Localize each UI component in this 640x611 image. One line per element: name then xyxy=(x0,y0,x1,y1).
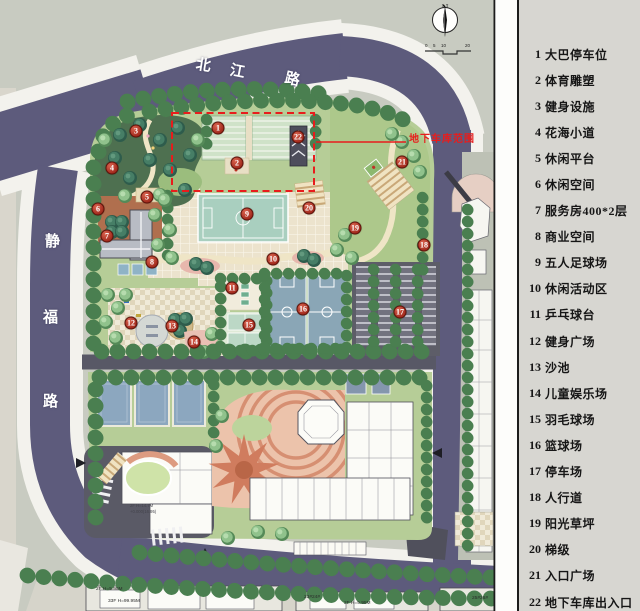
legend-item-number: 20 xyxy=(526,542,541,557)
legend-panel: 1 大巴停车位 2 体育雕塑 3 健身设施 4 花海小道 5 休闲平台 6 休闲… xyxy=(517,0,640,611)
building-label-center-2: +0.000(16.95) xyxy=(130,509,156,514)
legend-item-label: 健身广场 xyxy=(545,333,595,350)
legend-item-number: 4 xyxy=(526,125,541,140)
legend-item: 20 梯级 xyxy=(526,537,640,563)
legend-item: 6 休闲空间 xyxy=(526,171,640,197)
legend-item-label: 梯级 xyxy=(545,541,570,558)
legend-item-number: 17 xyxy=(526,464,541,479)
legend-item-number: 15 xyxy=(526,412,541,427)
building-label-center-1: 2F H=14.7M xyxy=(130,503,153,508)
legend-item-number: 1 xyxy=(526,47,541,62)
legend-item: 16 篮球场 xyxy=(526,432,640,458)
legend-item-label: 休闲空间 xyxy=(545,176,595,193)
map-marker: 6 xyxy=(92,203,105,216)
map-marker: 7 xyxy=(101,230,114,243)
legend-item-label: 服务房400*2层 xyxy=(545,202,628,219)
legend-item-label: 花海小道 xyxy=(545,124,595,141)
legend-item: 1 大巴停车位 xyxy=(526,41,640,67)
legend-item-label: 五人足球场 xyxy=(545,254,608,271)
garage-range-label: 地下车库范围 xyxy=(409,130,475,145)
map-marker: 3 xyxy=(130,125,143,138)
map-marker: 4 xyxy=(106,162,119,175)
map-marker: 14 xyxy=(188,336,201,349)
legend-item-label: 沙池 xyxy=(545,359,570,376)
legend-item: 10 休闲活动区 xyxy=(526,276,640,302)
legend-item: 2 体育雕塑 xyxy=(526,67,640,93)
legend-item-number: 16 xyxy=(526,438,541,453)
legend-item-number: 2 xyxy=(526,73,541,88)
legend-item: 22 地下车库出入口 xyxy=(526,589,640,611)
map-marker: 8 xyxy=(146,256,159,269)
legend-item-label: 休闲平台 xyxy=(545,150,595,167)
scale-tick: 20 xyxy=(465,43,470,48)
building-label-right-1: 23#24# xyxy=(304,595,320,600)
scale-tick: 0 xyxy=(425,43,428,48)
legend-item: 5 休闲平台 xyxy=(526,145,640,171)
compass: N xyxy=(431,4,459,13)
building-label-corner: 25#26# xyxy=(472,596,488,601)
legend-item-number: 14 xyxy=(526,386,541,401)
compass-needle-icon xyxy=(431,4,459,38)
legend-item-label: 羽毛球场 xyxy=(545,411,595,428)
map-marker: 21 xyxy=(396,156,409,169)
legend-item: 11 乒乓球台 xyxy=(526,302,640,328)
map-marker: 9 xyxy=(241,208,254,221)
legend-item-number: 3 xyxy=(526,99,541,114)
map-marker: 10 xyxy=(267,253,280,266)
legend-item-label: 体育雕塑 xyxy=(545,72,595,89)
map-marker: 15 xyxy=(243,319,256,332)
legend-item-label: 休闲活动区 xyxy=(545,280,608,297)
legend-item: 15 羽毛球场 xyxy=(526,406,640,432)
building-label-left-1: 2F H=5.95M xyxy=(96,587,123,592)
legend-item-label: 地下车库出入口 xyxy=(545,594,633,611)
legend-item-number: 12 xyxy=(526,334,541,349)
legend-list: 1 大巴停车位 2 体育雕塑 3 健身设施 4 花海小道 5 休闲平台 6 休闲… xyxy=(519,0,640,611)
building-label-right-2: 2F H=5.95M xyxy=(344,601,371,606)
legend-item: 4 花海小道 xyxy=(526,119,640,145)
legend-item-label: 儿童娱乐场 xyxy=(545,385,608,402)
legend-item: 21 入口广场 xyxy=(526,563,640,589)
map-marker: 2 xyxy=(231,157,244,170)
legend-item-label: 乒乓球台 xyxy=(545,306,595,323)
legend-item-number: 21 xyxy=(526,568,541,583)
scale-bar-line xyxy=(423,49,475,57)
legend-item-label: 健身设施 xyxy=(545,98,595,115)
map-marker: 17 xyxy=(394,306,407,319)
legend-item-label: 入口广场 xyxy=(545,567,595,584)
legend-item: 9 五人足球场 xyxy=(526,250,640,276)
legend-item-label: 阳光草坪 xyxy=(545,515,595,532)
legend-item: 14 儿童娱乐场 xyxy=(526,380,640,406)
map-marker: 19 xyxy=(349,222,362,235)
legend-item-label: 篮球场 xyxy=(545,437,583,454)
map-marker: 12 xyxy=(125,317,138,330)
road-char: 静 xyxy=(45,230,60,251)
map-marker: 20 xyxy=(303,202,316,215)
map-marker: 18 xyxy=(418,239,431,252)
map-marker: 22 xyxy=(292,131,305,144)
legend-item-number: 9 xyxy=(526,255,541,270)
scale-tick: 10 xyxy=(441,43,446,48)
legend-item-number: 19 xyxy=(526,516,541,531)
legend-item: 13 沙池 xyxy=(526,354,640,380)
legend-item-number: 11 xyxy=(526,307,541,322)
site-plan-canvas: 北 江 路 静 福 路 地下车库范围 2F H=14.7M +0.000(16.… xyxy=(0,0,640,611)
legend-item-number: 8 xyxy=(526,229,541,244)
map-marker: 16 xyxy=(297,303,310,316)
map-marker: 5 xyxy=(141,191,154,204)
legend-item: 18 人行道 xyxy=(526,485,640,511)
map-graphics xyxy=(0,0,517,611)
legend-item-number: 7 xyxy=(526,203,541,218)
legend-item-number: 10 xyxy=(526,281,541,296)
legend-item-label: 大巴停车位 xyxy=(545,46,608,63)
map-marker: 11 xyxy=(226,282,239,295)
legend-item: 19 阳光草坪 xyxy=(526,511,640,537)
legend-item: 17 停车场 xyxy=(526,459,640,485)
map-marker: 13 xyxy=(166,320,179,333)
scale-tick: 5 xyxy=(433,43,436,48)
legend-item-number: 5 xyxy=(526,151,541,166)
building-label-left-2: 33F H=99.95M xyxy=(108,599,140,604)
legend-item: 3 健身设施 xyxy=(526,93,640,119)
legend-item-label: 商业空间 xyxy=(545,228,595,245)
scale-bar: 0 5 10 20 xyxy=(423,43,475,57)
legend-item: 7 服务房400*2层 xyxy=(526,198,640,224)
legend-item: 8 商业空间 xyxy=(526,224,640,250)
legend-item-number: 18 xyxy=(526,490,541,505)
map-marker: 1 xyxy=(212,122,225,135)
map-area: 北 江 路 静 福 路 地下车库范围 2F H=14.7M +0.000(16.… xyxy=(0,0,517,611)
road-char: 路 xyxy=(43,390,58,411)
legend-item-number: 13 xyxy=(526,360,541,375)
legend-item: 12 健身广场 xyxy=(526,328,640,354)
legend-item-label: 停车场 xyxy=(545,463,583,480)
road-char: 福 xyxy=(43,306,58,327)
legend-item-number: 6 xyxy=(526,177,541,192)
legend-item-number: 22 xyxy=(526,595,541,610)
legend-item-label: 人行道 xyxy=(545,489,583,506)
